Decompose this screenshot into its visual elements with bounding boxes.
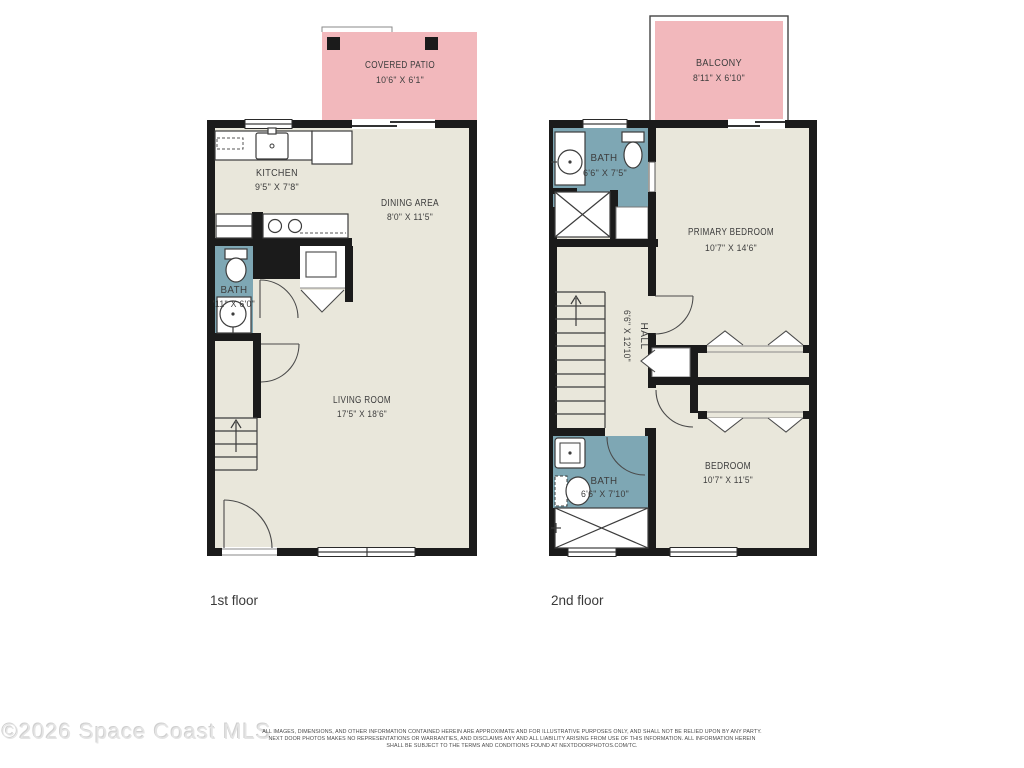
room-label: COVERED PATIO: [365, 60, 435, 71]
floor-plan-page: COVERED PATIO 10'6" X 6'1" KITCHEN 9'5" …: [0, 0, 1024, 768]
disclaimer-line: SHALL BE SUBJECT TO THE TERMS AND CONDIT…: [0, 743, 1024, 750]
room-label: BATH: [591, 476, 618, 487]
toilet-bowl: [226, 258, 246, 282]
room-dims: 8'0" X 11'5": [387, 212, 433, 222]
room-label: PRIMARY BEDROOM: [688, 227, 774, 238]
room-dims: 6'6" X 12'10": [622, 310, 632, 362]
front-door-opening: [222, 547, 277, 557]
balcony: [650, 16, 788, 122]
bath-window: [583, 120, 627, 129]
floor-plan-drawing: COVERED PATIO 10'6" X 6'1" KITCHEN 9'5" …: [0, 0, 1024, 768]
bath-pocket-door: [649, 162, 655, 192]
disclaimer-line: ALL IMAGES, DIMENSIONS, AND OTHER INFORM…: [0, 729, 1024, 736]
first-floor-label: 1st floor: [210, 593, 258, 608]
hall-closet: [652, 348, 690, 377]
toilet-bowl: [624, 142, 642, 168]
chase: [253, 246, 302, 279]
room-label: KITCHEN: [256, 168, 298, 179]
room-dims: 6'6" X 7'10": [581, 489, 629, 499]
room-label: BEDROOM: [705, 461, 751, 472]
room-label: BATH: [221, 285, 248, 296]
living-room-windows: [318, 548, 415, 557]
room-dims: 8'11" X 6'10": [693, 73, 745, 83]
faucet: [268, 128, 276, 134]
room-dims: 6'6" X 7'5": [583, 168, 627, 178]
kitchen-sink: [256, 133, 288, 159]
room-label: HALL: [638, 323, 649, 350]
patio-sliding-door: [352, 119, 435, 129]
toilet-tank: [622, 132, 644, 142]
room-label: BATH: [591, 153, 618, 164]
room-label: LIVING ROOM: [333, 395, 391, 406]
second-floor-label: 2nd floor: [551, 593, 604, 608]
room-dims: 10'7" X 14'6": [705, 243, 757, 253]
room-dims: 9'5" X 7'8": [255, 182, 299, 192]
first-floor-plan: COVERED PATIO 10'6" X 6'1" KITCHEN 9'5" …: [207, 27, 477, 557]
room-dims: '11" X 6'0": [213, 299, 255, 309]
bath-vanity: [555, 132, 585, 185]
refrigerator: [312, 131, 352, 164]
disclaimer-line: NEXT DOOR PHOTOS MAKES NO REPRESENTATION…: [0, 736, 1024, 743]
room-dims: 10'7" X 11'5": [703, 475, 753, 485]
toilet-tank: [555, 476, 567, 506]
room-label: DINING AREA: [381, 198, 439, 209]
kitchen-window: [245, 120, 292, 129]
room-label: BALCONY: [696, 58, 742, 69]
second-floor-bath-upper: [549, 128, 658, 247]
patio-post: [327, 37, 340, 50]
stove-counter: [263, 214, 348, 238]
room-dims: 17'5" X 18'6": [337, 409, 387, 419]
balcony-sliding-door: [728, 119, 785, 129]
second-floor-bath-lower: [549, 428, 656, 548]
disclaimer-text: ALL IMAGES, DIMENSIONS, AND OTHER INFORM…: [0, 729, 1024, 750]
second-floor-plan: BALCONY 8'11" X 6'10" BATH 6'6" X 7'5" P…: [549, 16, 817, 557]
room-dims: 10'6" X 6'1": [376, 75, 424, 85]
linen-closet: [616, 207, 648, 239]
patio-post: [425, 37, 438, 50]
